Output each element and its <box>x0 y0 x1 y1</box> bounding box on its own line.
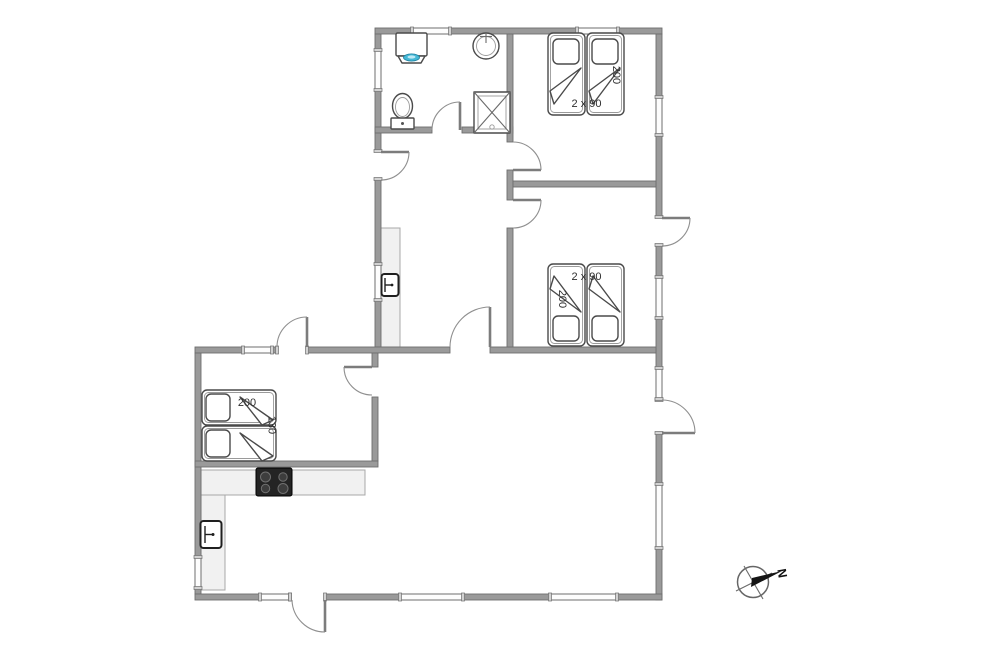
pillow <box>592 316 618 341</box>
floor-plan: 2 x 90 200 2 x 90 200 200 130 N <box>0 0 1000 667</box>
pillow <box>206 430 230 457</box>
beds-bedroom-top: 2 x 90 200 <box>548 33 624 115</box>
bathroom-fixtures <box>391 33 510 133</box>
room-living-kitchen <box>378 353 656 594</box>
floor-plan-canvas: 2 x 90 200 2 x 90 200 200 130 N <box>0 0 1000 667</box>
window <box>550 594 617 600</box>
door-terrace-living <box>655 398 695 435</box>
door-terrace-bedroom-middle <box>655 216 690 247</box>
washbasin-icon <box>473 33 499 59</box>
window <box>260 594 290 600</box>
door-hallway-living <box>450 307 490 347</box>
window <box>243 347 272 353</box>
beds-bedroom-middle: 2 x 90 200 <box>548 264 624 346</box>
pillow <box>553 39 579 64</box>
window <box>375 50 381 90</box>
pillow <box>592 39 618 64</box>
oven-icon <box>201 521 222 548</box>
window <box>656 97 662 135</box>
bed-size-label: 2 x 90 <box>572 271 602 283</box>
door-entrance-bedroom-left <box>276 317 309 354</box>
compass-rose: N <box>736 566 790 599</box>
window <box>656 277 662 318</box>
pillow <box>206 394 230 421</box>
window <box>400 594 463 600</box>
window <box>656 368 662 400</box>
door-bedroom-top <box>513 142 541 170</box>
bed-length-label: 200 <box>610 66 622 84</box>
water-heater-icon <box>382 274 399 296</box>
toilet-icon <box>391 94 414 130</box>
window <box>375 264 381 300</box>
washing-machine-icon <box>396 33 427 63</box>
bed-width-label: 130 <box>266 416 278 434</box>
door-main-entrance <box>374 150 409 181</box>
window <box>195 557 201 588</box>
cooktop-icon <box>256 468 292 496</box>
bed-size-label: 2 x 90 <box>572 98 602 110</box>
door-bathroom <box>432 102 460 130</box>
window <box>656 484 662 548</box>
door-bedroom-middle <box>513 200 541 228</box>
beds-bedroom-left: 200 130 <box>202 390 278 461</box>
door-bedroom-left-interior <box>344 367 372 395</box>
compass-north-label: N <box>774 568 789 579</box>
bed-length-label: 200 <box>238 397 256 409</box>
door-exterior-south <box>289 593 327 632</box>
bed-length-label: 200 <box>556 290 568 308</box>
shower-icon <box>474 92 510 133</box>
pillow <box>553 316 579 341</box>
